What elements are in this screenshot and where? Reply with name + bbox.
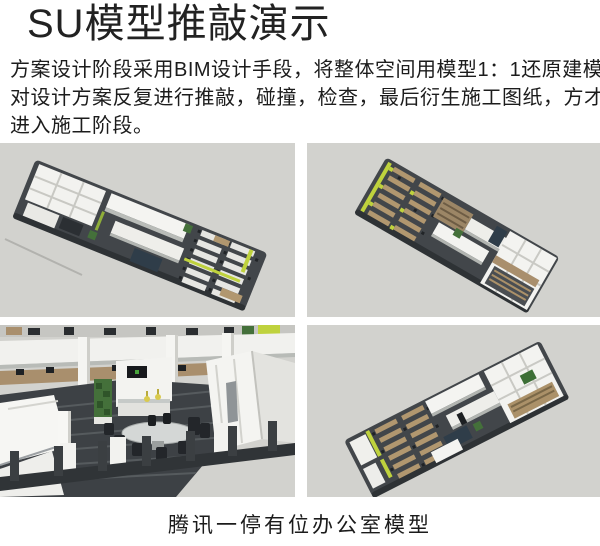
su-model-aerial-2-drawing: [307, 143, 600, 317]
paragraph-line: 进入施工阶段。: [10, 112, 595, 140]
su-model-interior-drawing: [0, 325, 295, 497]
su-model-aerial-1-drawing: [0, 143, 295, 317]
model-image-aerial-3: [307, 325, 600, 497]
page-title: SU模型推敲演示: [27, 0, 331, 48]
plant-wall: [94, 379, 112, 424]
paragraph-line: 方案设计阶段采用BIM设计手段，将整体空间用模型1：1还原建模，: [10, 56, 595, 84]
description-paragraph: 方案设计阶段采用BIM设计手段，将整体空间用模型1：1还原建模， 对设计方案反复…: [10, 56, 595, 140]
model-image-aerial-2: [307, 143, 600, 317]
document-page: SU模型推敲演示 方案设计阶段采用BIM设计手段，将整体空间用模型1：1还原建模…: [0, 0, 600, 546]
paragraph-line: 对设计方案反复进行推敲，碰撞，检查，最后衍生施工图纸，方才: [10, 84, 595, 112]
su-model-aerial-3-drawing: [307, 325, 600, 497]
model-image-interior: [0, 325, 295, 497]
model-image-aerial-1: [0, 143, 295, 317]
logo-screen: [135, 370, 139, 374]
image-caption: 腾讯一停有位办公室模型: [0, 513, 600, 539]
